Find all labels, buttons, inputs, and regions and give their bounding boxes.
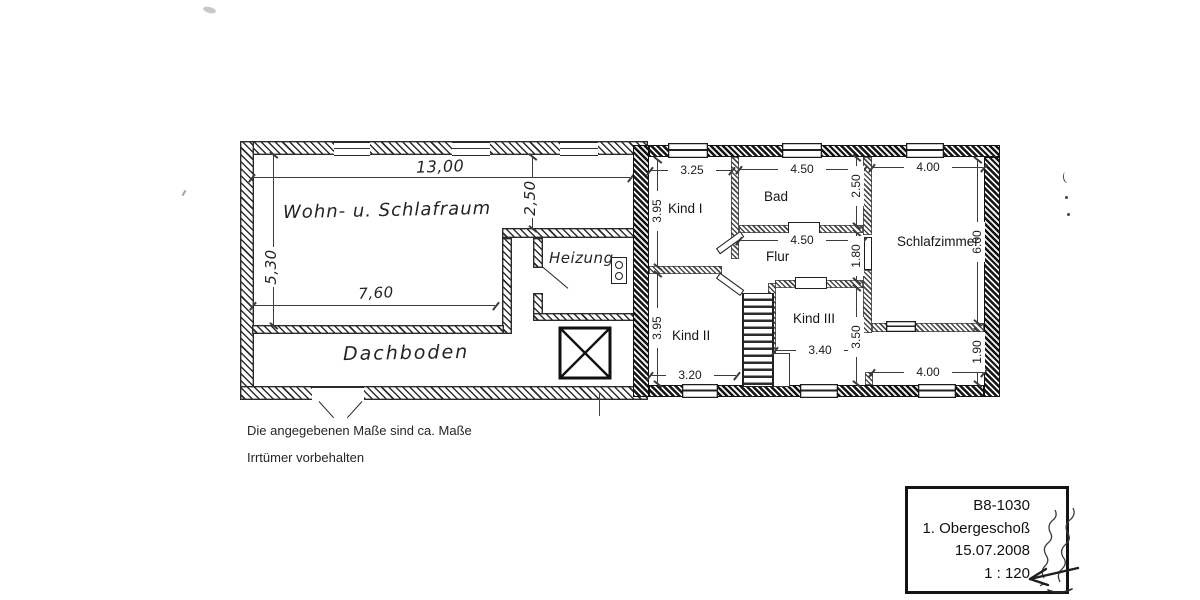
staircase: [742, 293, 774, 387]
door-swing-icon: [542, 266, 569, 289]
wall-divider: [633, 145, 649, 397]
room-label-bad: Bad: [764, 189, 788, 204]
dim-line: [273, 155, 274, 325]
scan-artifact: [182, 190, 187, 196]
scan-artifact: [1065, 196, 1068, 199]
window-icon: [560, 142, 598, 156]
room-label-wohn-schlafraum: Wohn- u. Schlafraum: [283, 198, 492, 223]
dim-label: 3.40: [796, 343, 844, 357]
shaft-cross-icon: [558, 326, 612, 380]
dim-label: 3.95: [649, 191, 665, 231]
door-leaf-icon: [864, 237, 872, 270]
scan-artifact: [202, 5, 216, 14]
room-label-schlafzimmer: Schlafzimmer: [897, 234, 979, 249]
room-label-kind1: Kind I: [668, 201, 703, 216]
window-icon: [334, 142, 370, 156]
dim-label: 4.00: [904, 365, 952, 379]
window-icon: [918, 384, 956, 398]
dim-label: 2,50: [522, 178, 538, 218]
wall-bottom-left-wing: [240, 386, 648, 400]
wall-segment: [502, 238, 512, 334]
dim-label: 7,60: [352, 285, 401, 301]
window-icon: [800, 384, 838, 398]
drawing-scale: 1 : 120: [908, 563, 1030, 586]
dim-label: 4.00: [904, 160, 952, 174]
dim-label: 4.50: [778, 162, 826, 176]
wall-right-right-wing: [984, 157, 1000, 397]
door-leaf-icon: [716, 273, 744, 296]
floor-name: 1. Obergeschoß: [908, 518, 1030, 541]
wall-segment: [252, 325, 504, 334]
wall-segment: [533, 238, 543, 268]
door-opening: [312, 387, 364, 400]
drawing-number: B8-1030: [908, 495, 1030, 518]
room-label-kind3: Kind III: [793, 311, 835, 326]
room-label-heizung: Heizung: [549, 249, 614, 267]
wall-segment: [502, 228, 648, 238]
window-icon: [668, 143, 708, 158]
scan-artifact: [1062, 171, 1071, 183]
scan-artifact: [1067, 213, 1070, 216]
hand-arrow-icon: [1018, 558, 1084, 596]
dim-label: 5,30: [263, 247, 279, 287]
dim-label: 3.50: [848, 317, 864, 357]
note-measures: Die angegebenen Maße sind ca. Maße: [247, 423, 472, 438]
window-icon: [782, 143, 822, 158]
dim-label: 3.25: [668, 163, 716, 177]
window-icon: [682, 384, 718, 398]
dim-label: 4.50: [778, 233, 826, 247]
room-label-kind2: Kind II: [672, 328, 710, 343]
entrance-mark-icon: [319, 401, 334, 418]
note-errors: Irrtümer vorbehalten: [247, 450, 364, 465]
dim-label: 2.50: [848, 166, 864, 206]
window-icon: [452, 142, 490, 156]
scan-artifact: [599, 392, 600, 416]
room-label-dachboden: Dachboden: [343, 341, 470, 365]
radiator-icon: [795, 277, 827, 289]
room-label-flur: Flur: [766, 249, 789, 264]
dim-label: 3.20: [666, 368, 714, 382]
wall-segment: [533, 313, 645, 321]
dim-label: 3.95: [649, 308, 665, 348]
dim-label: 1.90: [969, 332, 985, 372]
wall-left-left-wing: [240, 141, 254, 400]
entrance-mark-icon: [347, 401, 362, 418]
window-icon: [906, 143, 944, 158]
window-icon: [886, 321, 916, 332]
drawing-date: 15.07.2008: [908, 540, 1030, 563]
dim-line: [252, 177, 630, 178]
wall-schlafzimmer-left-lower: [863, 270, 872, 333]
dim-line: [253, 305, 495, 306]
floor-plan-scan: 13,00 5,30 7,60 2,50 Wohn- u. Schlafraum…: [0, 0, 1200, 600]
dim-label: 1.80: [848, 236, 864, 276]
dim-label: 13,00: [414, 159, 462, 175]
